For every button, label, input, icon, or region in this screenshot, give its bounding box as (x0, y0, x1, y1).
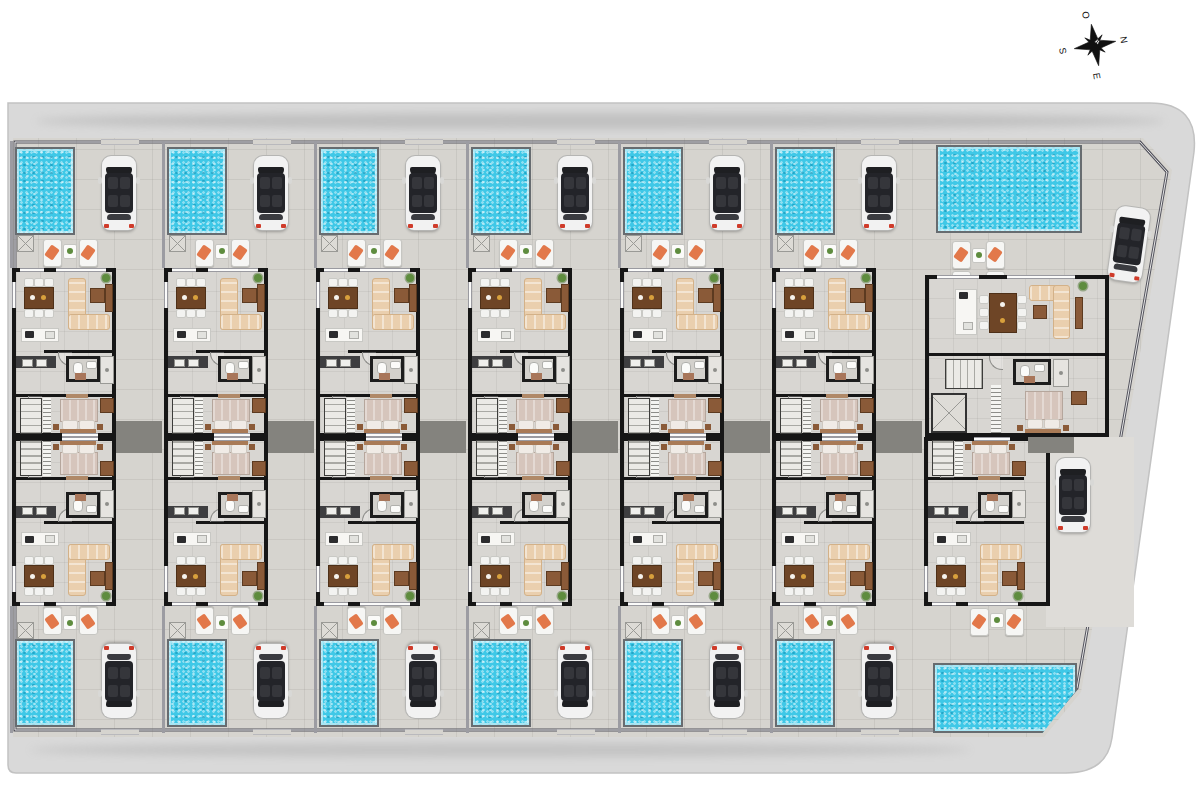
dining-chair (946, 556, 956, 565)
sliding-door-window (512, 602, 562, 606)
pool-side-table (972, 248, 986, 263)
parked-car (406, 156, 440, 230)
dining-chair (979, 308, 989, 317)
table-plant (67, 248, 73, 254)
car-mirror (402, 690, 406, 697)
bed (1025, 391, 1061, 433)
shower (100, 356, 114, 384)
car-taillight (281, 224, 286, 228)
bath-sink (238, 505, 249, 513)
shower (404, 356, 418, 384)
car-cabin (105, 661, 133, 701)
pool-side-table (519, 244, 533, 259)
swimming-pool (936, 145, 1082, 233)
car-seat (272, 177, 282, 189)
tv-unit (257, 284, 265, 312)
parked-car (102, 156, 136, 230)
dining-chair (348, 556, 358, 565)
sun-lounger (535, 239, 554, 267)
bed-headboard (972, 441, 1008, 445)
pool-side-table (823, 615, 837, 630)
car-mirror (440, 177, 444, 184)
dining-chair (784, 556, 794, 565)
bed-bench (674, 394, 696, 398)
front-yard (314, 606, 469, 733)
dining-chair (44, 556, 54, 565)
stairs (476, 398, 498, 434)
dining-table (24, 287, 54, 309)
car-mirror (136, 690, 140, 697)
tv-unit (1075, 297, 1083, 329)
car-rear-glass (867, 214, 891, 220)
sun-lounger (839, 239, 858, 267)
cooktop (481, 536, 490, 543)
kitchen-counter (16, 506, 56, 518)
kitchen-sink (805, 535, 815, 543)
dining-table (989, 293, 1017, 333)
nightstand (813, 424, 819, 430)
kitchen-island (173, 328, 211, 342)
bed-blanket (668, 452, 706, 475)
indoor-plant (254, 274, 262, 282)
shower (1053, 359, 1069, 387)
dining-chair (328, 556, 338, 565)
table-plant (827, 620, 833, 626)
bed-pillow (62, 444, 78, 454)
stair-hatch (803, 398, 811, 433)
armchair (242, 571, 257, 586)
bathroom (826, 492, 860, 518)
front-yard (162, 606, 317, 733)
unit-th-bottom-5 (618, 437, 770, 733)
interior-wall (44, 350, 112, 353)
counter-sink (36, 507, 47, 515)
interior-wall (500, 521, 568, 524)
dining-chair (936, 556, 946, 565)
car-mirror (706, 690, 710, 697)
table-setting (638, 295, 643, 300)
armchair (90, 288, 105, 303)
stair-hatch (43, 441, 51, 476)
dining-chair (1017, 295, 1027, 304)
bath-sink (846, 361, 857, 369)
tv-unit (713, 284, 721, 312)
cooktop (785, 331, 794, 338)
dining-chair (784, 278, 794, 287)
dining-chair (500, 309, 510, 318)
car-seat (412, 667, 422, 679)
dining-chair (979, 295, 989, 304)
counter-sink (36, 359, 47, 367)
bed-bench (522, 394, 544, 398)
stairs (628, 398, 650, 434)
armchair (698, 288, 713, 303)
stair-hatch (195, 398, 203, 433)
shower-drain (409, 502, 413, 506)
dining-chair (642, 278, 652, 287)
bathroom (66, 492, 100, 518)
bed-blanket (516, 452, 554, 475)
nightstand (857, 444, 863, 450)
car-taillight (256, 646, 261, 650)
indoor-plant (1079, 282, 1087, 290)
car-taillight (737, 224, 742, 228)
dining-chair (979, 321, 989, 330)
pool-side-table (215, 615, 229, 630)
bed (668, 441, 704, 475)
rear-patio (268, 437, 314, 453)
side-window (316, 566, 320, 592)
armchair (850, 288, 865, 303)
dining-chair (794, 309, 804, 318)
car-rear-glass (867, 654, 891, 660)
cooktop (633, 536, 642, 543)
stairs (945, 359, 983, 389)
unit-th-top-6 (770, 141, 922, 437)
shower-drain (1017, 502, 1021, 506)
dining-chair (348, 587, 358, 596)
bed-blanket (820, 399, 858, 422)
car-seat (424, 177, 434, 189)
indoor-plant (862, 592, 870, 600)
car-seat (728, 177, 738, 189)
cooktop (785, 536, 794, 543)
side-window (620, 566, 624, 592)
unit-th-top-4 (466, 141, 618, 437)
car-seat (1074, 479, 1084, 491)
swimming-pool (471, 639, 531, 727)
stairs (20, 398, 42, 434)
bed-pillow (991, 444, 1007, 454)
rear-patio (420, 421, 466, 437)
bath-sink (694, 361, 705, 369)
bed (212, 399, 248, 433)
sliding-door-window (360, 268, 410, 272)
sun-lounger (195, 239, 214, 267)
dining-chair (338, 278, 348, 287)
dining-chair (632, 587, 642, 596)
car-seat (576, 667, 586, 679)
bed-bench (370, 394, 392, 398)
indoor-plant (406, 274, 414, 282)
car-rear-glass (411, 654, 435, 660)
bed-blanket (212, 452, 250, 475)
window (937, 275, 979, 279)
sliding-door-window (208, 602, 258, 606)
wardrobe (1012, 461, 1026, 476)
kitchen-island (477, 532, 515, 546)
wardrobe (1071, 391, 1087, 405)
table-setting (334, 295, 339, 300)
dining-chair (652, 278, 662, 287)
interior-wall (500, 350, 568, 353)
dining-chair (632, 556, 642, 565)
kitchen-island (629, 328, 667, 342)
shower (100, 490, 114, 518)
car-mirror (250, 690, 254, 697)
dining-chair (652, 309, 662, 318)
table-setting (953, 574, 958, 579)
table-setting (486, 295, 491, 300)
dining-chair (44, 587, 54, 596)
car-seat (716, 685, 726, 697)
car-seat (424, 667, 434, 679)
interior-wall (196, 350, 264, 353)
table-plant (371, 620, 377, 626)
counter-sink (934, 507, 945, 515)
car-seat (564, 667, 574, 679)
car-rear-glass (259, 654, 283, 660)
car-mirror (440, 690, 444, 697)
shower-drain (1059, 371, 1063, 375)
shower (1012, 490, 1026, 518)
swimming-pool (319, 147, 379, 235)
wardrobe (556, 398, 570, 413)
swimming-pool (167, 639, 227, 727)
dining-table (480, 565, 510, 587)
unit-th-bottom-3 (314, 437, 466, 733)
bed-blanket (1025, 391, 1063, 420)
bed-pillow (231, 444, 247, 454)
lounger-towel (500, 244, 516, 260)
lounger-towel (536, 244, 552, 260)
sun-lounger (499, 607, 518, 635)
parked-car (558, 644, 592, 718)
side-window (924, 566, 928, 592)
dining-chair (480, 309, 490, 318)
dining-chair (784, 587, 794, 596)
indoor-plant (102, 592, 110, 600)
car-taillight (1058, 526, 1063, 530)
outdoor-shower (17, 622, 34, 639)
sun-lounger (499, 239, 518, 267)
sun-lounger (986, 241, 1005, 269)
dining-chair (176, 278, 186, 287)
shower-drain (105, 502, 109, 506)
shower (252, 490, 266, 518)
bed-bench (218, 476, 240, 480)
table-plant (523, 620, 529, 626)
car-taillight (281, 646, 286, 650)
pool-side-table (63, 615, 77, 630)
sun-lounger (347, 239, 366, 267)
driveway-gate (709, 139, 747, 145)
nightstand (509, 424, 515, 430)
car-cabin (409, 173, 437, 213)
kitchen-island (955, 289, 977, 335)
window (780, 268, 804, 272)
lounger-towel (1006, 613, 1022, 629)
unit-building (468, 268, 572, 437)
car-seat (108, 685, 118, 697)
kitchen-sink (957, 535, 967, 543)
bathroom (218, 492, 252, 518)
bed (212, 441, 248, 475)
shower-drain (257, 502, 261, 506)
car-seat (564, 195, 574, 207)
lounger-towel (804, 244, 820, 260)
kitchen-island (781, 328, 819, 342)
stairs (20, 440, 42, 476)
counter-sink (782, 359, 793, 367)
car-seat (1062, 479, 1072, 491)
swimming-pool (319, 639, 379, 727)
bath-sink (694, 505, 705, 513)
indoor-plant (710, 592, 718, 600)
car-mirror (592, 690, 596, 697)
unit-th-top-3 (314, 141, 466, 437)
table-plant (371, 248, 377, 254)
front-yard (10, 606, 165, 733)
dining-table (176, 287, 206, 309)
floor-plan-page: { "compass": { "north": "N", "east": "E"… (0, 0, 1200, 800)
cooktop (329, 536, 338, 543)
car-mirror (858, 690, 862, 697)
shower-drain (561, 502, 565, 506)
kitchen-counter (320, 506, 360, 518)
car-taillight (104, 224, 109, 228)
dining-chair (348, 278, 358, 287)
car-mirror (554, 690, 558, 697)
bath-sink (1034, 364, 1045, 372)
dining-chair (196, 556, 206, 565)
bath-mat (227, 373, 238, 380)
counter-sink (326, 359, 337, 367)
bed-bench (66, 476, 88, 480)
bed (60, 399, 96, 433)
pool-side-table (519, 615, 533, 630)
stairs (172, 398, 194, 434)
sofa-l-arm (220, 544, 262, 560)
table-setting (1000, 302, 1005, 307)
sliding-door-window (816, 602, 866, 606)
bathroom (218, 356, 252, 382)
bed-blanket (364, 452, 402, 475)
nightstand (97, 444, 103, 450)
lounger-towel (536, 613, 552, 629)
bed-headboard (820, 429, 856, 433)
car-rear-glass (715, 654, 739, 660)
nightstand (205, 424, 211, 430)
car-seat (716, 667, 726, 679)
swimming-pool (15, 639, 75, 727)
pool-side-table (671, 615, 685, 630)
dining-chair (632, 278, 642, 287)
bed-pillow (839, 444, 855, 454)
dining-chair (480, 556, 490, 565)
sun-lounger (1005, 608, 1024, 636)
counter-sink (492, 359, 503, 367)
lounger-towel (840, 613, 856, 629)
swimming-pool (167, 147, 227, 235)
wardrobe (252, 461, 266, 476)
table-setting (790, 574, 795, 579)
dining-chair (804, 278, 814, 287)
bed-pillow (1027, 419, 1043, 429)
bath-mat (987, 494, 998, 501)
dining-chair (34, 587, 44, 596)
indoor-plant (1014, 592, 1022, 600)
pool-side-table (823, 244, 837, 259)
sun-lounger (651, 239, 670, 267)
nightstand (249, 444, 255, 450)
car-cabin (713, 173, 741, 213)
indoor-plant (558, 592, 566, 600)
side-window (468, 282, 472, 308)
side-window (12, 282, 16, 308)
dining-chair (490, 278, 500, 287)
car-seat (272, 685, 282, 697)
lounger-towel (232, 613, 248, 629)
sofa-l-arm (372, 544, 414, 560)
dining-chair (490, 556, 500, 565)
kitchen-sink (653, 535, 663, 543)
sofa-l-arm (68, 314, 110, 330)
bed-pillow (822, 444, 838, 454)
dining-chair (196, 587, 206, 596)
table-setting (801, 574, 806, 579)
dining-chair (956, 556, 966, 565)
sofa-l-arm (676, 314, 718, 330)
counter-sink (630, 359, 641, 367)
pool-side-table (990, 613, 1004, 628)
front-yard (10, 141, 165, 268)
cooktop (937, 536, 946, 543)
sliding-door-window (816, 268, 866, 272)
car-seat (728, 667, 738, 679)
lounger-towel (348, 613, 364, 629)
stairs (324, 398, 346, 434)
lounger-towel (500, 613, 516, 629)
interior-wall (804, 350, 872, 353)
armchair (1002, 571, 1017, 586)
car-taillight (889, 224, 894, 228)
bathroom (826, 356, 860, 382)
armchair (698, 571, 713, 586)
dining-chair (24, 587, 34, 596)
outdoor-shower (625, 235, 642, 252)
car-mirror (554, 177, 558, 184)
lounger-towel (652, 244, 668, 260)
car-mirror (402, 177, 406, 184)
driveway-gate (709, 729, 747, 735)
car-rear-glass (563, 654, 587, 660)
bed-blanket (668, 399, 706, 422)
bed-pillow (974, 444, 990, 454)
dining-chair (338, 587, 348, 596)
sun-lounger (43, 607, 62, 635)
counter-sink (644, 507, 655, 515)
driveway-gate (405, 729, 443, 735)
car-mirror (1109, 225, 1114, 232)
kitchen-sink (501, 535, 511, 543)
counter-sink (174, 359, 185, 367)
unit-villa-north (922, 141, 1168, 437)
bed (364, 399, 400, 433)
car-mirror (1147, 231, 1152, 238)
front-yard (466, 141, 621, 268)
bed-headboard (1025, 429, 1061, 433)
sofa-l-arm (524, 314, 566, 330)
kitchen-island (325, 328, 363, 342)
bathroom (1013, 359, 1051, 385)
kitchen-island (629, 532, 667, 546)
bed-bench (978, 476, 1000, 480)
kitchen-sink (45, 535, 55, 543)
car-seat (272, 667, 282, 679)
car-taillight (129, 646, 134, 650)
dining-chair (338, 556, 348, 565)
